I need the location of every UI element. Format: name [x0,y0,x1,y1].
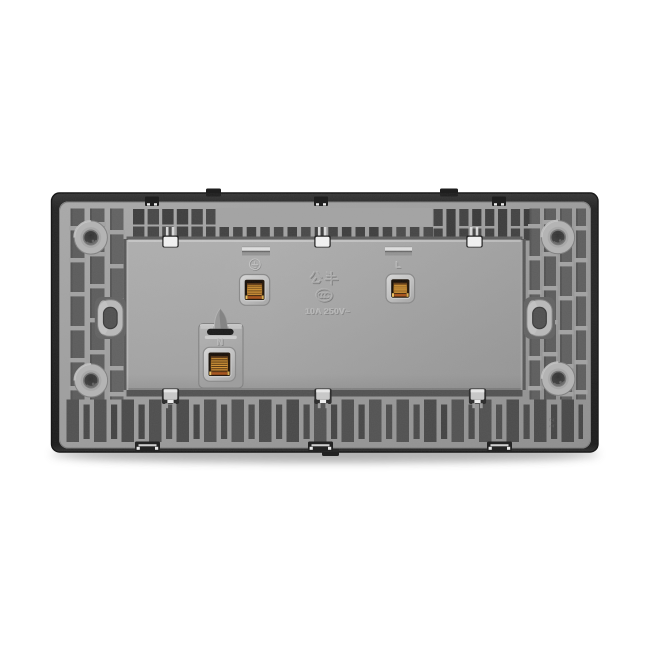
svg-text:1-2: 1-2 [549,418,556,428]
